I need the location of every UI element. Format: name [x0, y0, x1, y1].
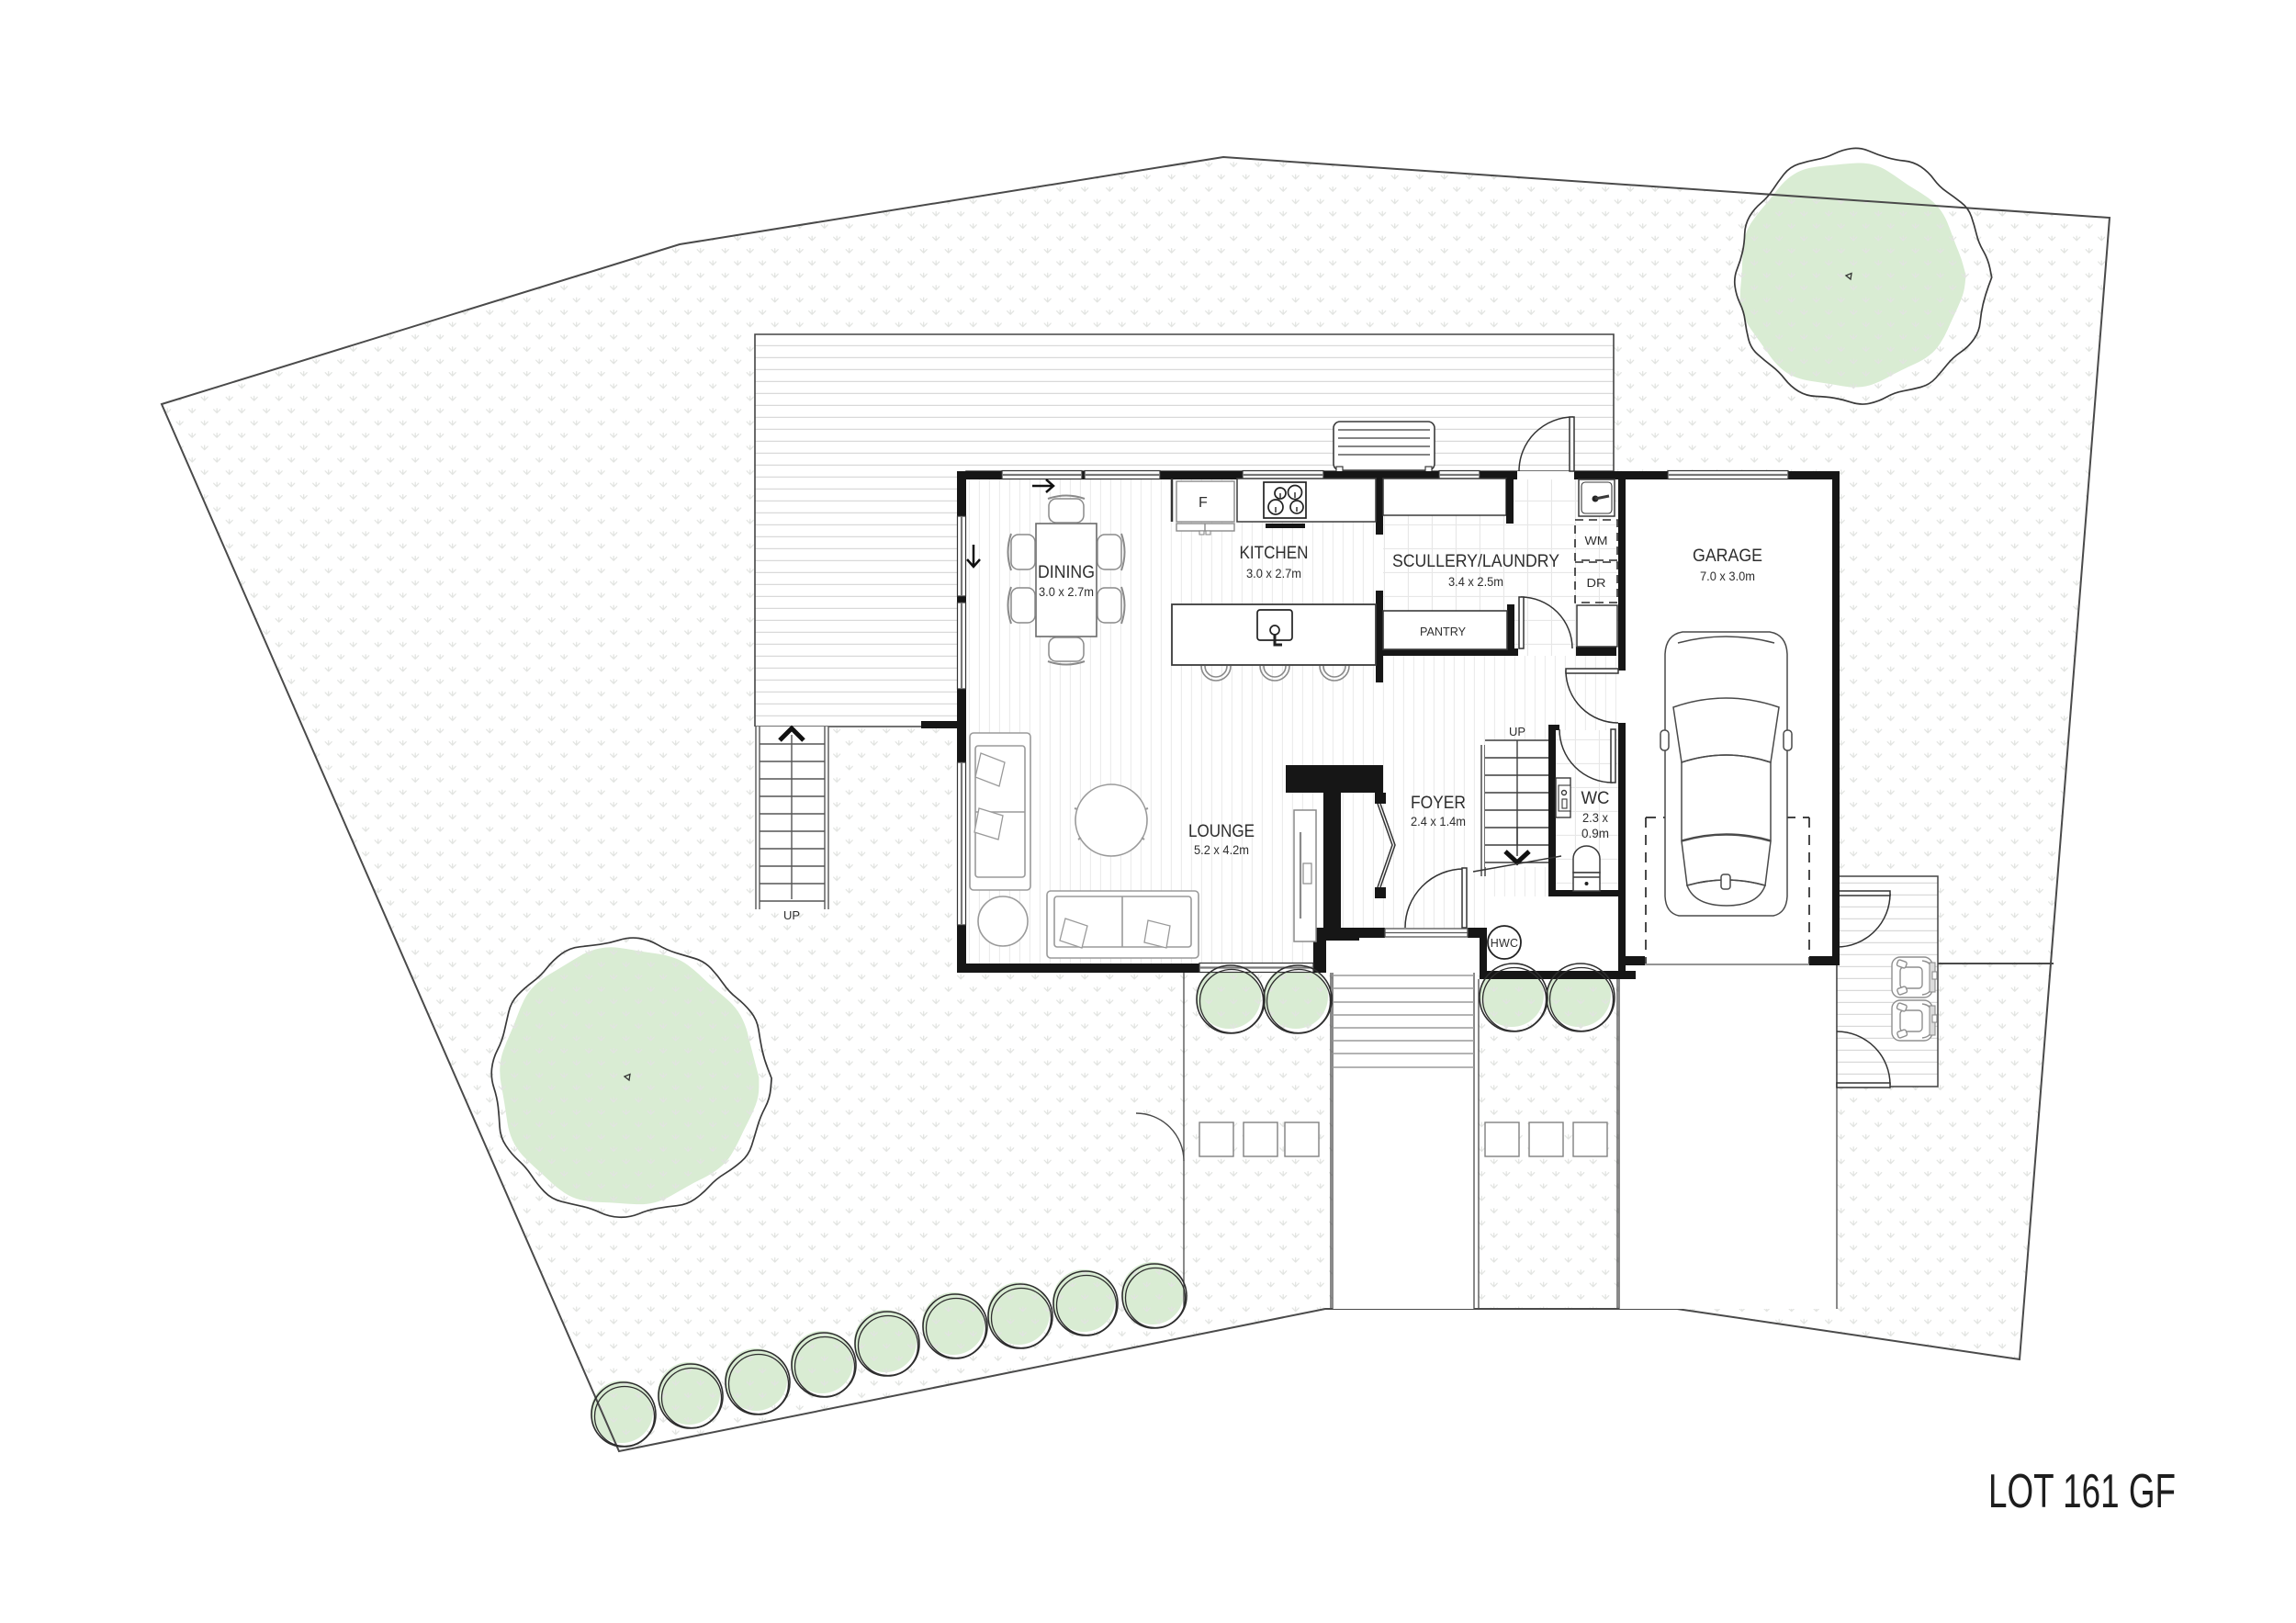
- svg-text:3.4 x 2.5m: 3.4 x 2.5m: [1448, 575, 1503, 589]
- svg-text:5.2 x 4.2m: 5.2 x 4.2m: [1194, 843, 1249, 857]
- svg-text:2.4 x 1.4m: 2.4 x 1.4m: [1411, 815, 1466, 828]
- svg-text:HWC: HWC: [1491, 937, 1518, 950]
- svg-text:DINING: DINING: [1038, 562, 1095, 582]
- svg-text:WC: WC: [1581, 788, 1610, 808]
- svg-text:PANTRY: PANTRY: [1420, 625, 1466, 638]
- svg-text:3.0 x 2.7m: 3.0 x 2.7m: [1246, 567, 1301, 580]
- svg-text:DR: DR: [1587, 576, 1606, 590]
- svg-text:UP: UP: [1509, 725, 1525, 738]
- svg-text:KITCHEN: KITCHEN: [1240, 543, 1309, 563]
- svg-text:7.0 x 3.0m: 7.0 x 3.0m: [1700, 569, 1755, 583]
- svg-text:0.9m: 0.9m: [1581, 827, 1609, 840]
- svg-text:3.0 x 2.7m: 3.0 x 2.7m: [1039, 585, 1094, 599]
- svg-text:FOYER: FOYER: [1411, 793, 1466, 813]
- svg-text:LOUNGE: LOUNGE: [1188, 821, 1255, 841]
- svg-text:UP: UP: [783, 908, 800, 922]
- svg-text:F: F: [1199, 495, 1208, 511]
- svg-text:2.3 x: 2.3 x: [1582, 811, 1608, 825]
- svg-text:GARAGE: GARAGE: [1693, 546, 1762, 566]
- svg-text:SCULLERY/LAUNDRY: SCULLERY/LAUNDRY: [1392, 551, 1559, 571]
- svg-text:LOT 161 GF: LOT 161 GF: [1988, 1465, 2176, 1518]
- svg-text:WM: WM: [1585, 534, 1608, 547]
